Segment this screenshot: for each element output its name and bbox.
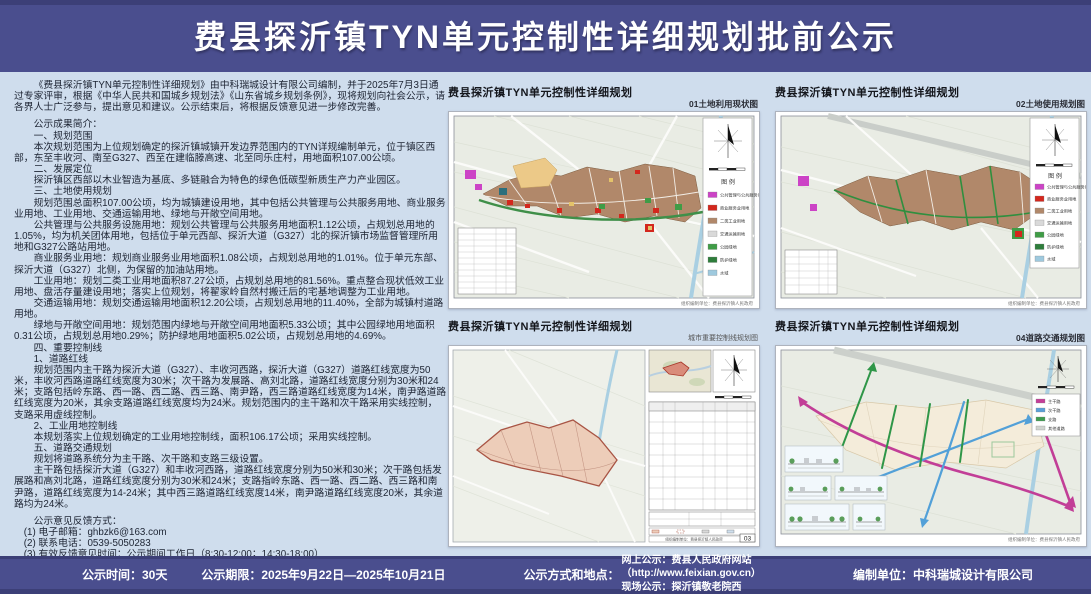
locator-map <box>649 350 711 392</box>
control-line-table <box>649 402 755 510</box>
section5-body2: 主干路包括探沂大道（G327）和丰收河西路，道路红线宽度分别为50米和30米；次… <box>14 465 447 510</box>
compass-icon <box>713 350 755 392</box>
svg-text:支路: 支路 <box>1048 416 1057 423</box>
section3-body3: 商业服务业用地：规划商业服务业用地面积1.08公顷，占规划总用地的1.01%。位… <box>14 253 447 275</box>
map-road-traffic: 主干路 次干路 支路 其他道路 <box>776 346 1086 546</box>
svg-text:交通运输用地: 交通运输用地 <box>1047 220 1073 227</box>
stats-table <box>458 228 516 294</box>
section1-body: 本次规划范围为上位规划确定的探沂镇城镇开发边界范围内的TYN详规编制单元，位于镇… <box>14 142 447 164</box>
svg-text:防护绿地: 防护绿地 <box>720 257 738 264</box>
panel-road-traffic: 费县探沂镇TYN单元控制性详细规划 04道路交通规划图 <box>775 318 1087 547</box>
svg-text:次干路: 次干路 <box>1048 407 1061 414</box>
panel-control-lines: 费县探沂镇TYN单元控制性详细规划 城市重要控制线规划图 <box>448 318 760 547</box>
panel1-map-card: 图 例 公共管理与公共服务用地 商业服务业用地 二类工业用地 交通运输用地 公园… <box>448 111 760 309</box>
svg-text:商业服务业用地: 商业服务业用地 <box>1047 196 1077 203</box>
panel1-subtitle: 01土地利用现状图 <box>689 98 758 110</box>
footer-publicity-period: 公示期限：2025年9月22日—2025年10月21日 <box>201 566 445 583</box>
map-legend-row <box>649 528 755 535</box>
section4-sub2: 2、工业用地控制线 <box>14 421 447 432</box>
legend-title: 图 例 <box>721 178 735 186</box>
feedback-heading: 公示意见反馈方式： <box>14 516 447 527</box>
stats-table <box>785 250 837 294</box>
panel2-subtitle: 02土地使用规划图 <box>1016 98 1085 110</box>
section4-heading: 四、重要控制线 <box>14 343 447 354</box>
notice-intro: 《费县探沂镇TYN单元控制性详细规划》由中科瑞城设计有限公司编制，并于2025年… <box>14 80 447 113</box>
section3-body4: 工业用地：规划二类工业用地面积87.27公顷，占规划总用地的81.56%。重点整… <box>14 276 447 298</box>
svg-text:二类工业用地: 二类工业用地 <box>1047 208 1073 215</box>
legend-sidebar: 图 例 公共管理与公共服务用地 商业服务业用地 二类工业用地 交通运输用地 公园… <box>1030 118 1086 268</box>
panel4-credit: 组织编制单位：费县探沂镇人民政府 <box>1008 536 1080 543</box>
svg-text:防护绿地: 防护绿地 <box>1047 244 1065 251</box>
section3-body2: 公共管理与公共服务设施用地：规划公共管理与公共服务用地面积1.12公顷，占规划总… <box>14 220 447 253</box>
panel-landuse-status: 费县探沂镇TYN单元控制性详细规划 01土地利用现状图 <box>448 84 760 309</box>
title-bar: 组织编制单位：费县探沂镇人民政府 03 <box>649 534 755 543</box>
map-landuse-status: 图 例 公共管理与公共服务用地 商业服务业用地 二类工业用地 交通运输用地 公园… <box>449 112 759 308</box>
map-landuse-plan: 图 例 公共管理与公共服务用地 商业服务业用地 二类工业用地 交通运输用地 公园… <box>776 112 1086 308</box>
svg-text:水域: 水域 <box>1047 256 1056 262</box>
svg-text:公共管理与公共服务用地: 公共管理与公共服务用地 <box>720 192 759 199</box>
panel1-credit: 组织编制单位：费县探沂镇人民政府 <box>681 300 753 307</box>
page-title: 费县探沂镇TYN单元控制性详细规划批前公示 <box>0 5 1091 69</box>
footer-publicity-time: 公示时间：30天 <box>82 566 167 583</box>
section3-body5: 交通运输用地：规划交通运输用地面积12.20公顷，占规划总用地的11.40%，全… <box>14 298 447 320</box>
section3-heading: 三、土地使用规划 <box>14 186 447 197</box>
panel4-subtitle: 04道路交通规划图 <box>1016 332 1085 344</box>
svg-text:其他道路: 其他道路 <box>1048 425 1066 432</box>
section4-sub1: 1、道路红线 <box>14 354 447 365</box>
footer-bar: 公示时间：30天 公示期限：2025年9月22日—2025年10月21日 公示方… <box>0 556 1091 594</box>
feedback-item-1: (1) 电子邮箱：ghbzk6@163.com <box>14 527 447 538</box>
notice-text-column: 《费县探沂镇TYN单元控制性详细规划》由中科瑞城设计有限公司编制，并于2025年… <box>14 80 447 558</box>
section3-body1: 规划范围总面积107.00公顷，均为城镇建设用地，其中包括公共管理与公共服务用地… <box>14 198 447 220</box>
footer-online-notice: 网上公示：费县人民政府网站（http://www.feixian.gov.cn） <box>621 554 853 581</box>
feedback-item-2: (2) 联系电话：0539-5050283 <box>14 538 447 549</box>
panel3-page-number: 03 <box>744 536 752 543</box>
section3-body6: 绿地与开敞空间用地：规划范围内绿地与开敞空间用地面积5.33公顷；其中公园绿地用… <box>14 320 447 342</box>
legend-sidebar: 图 例 公共管理与公共服务用地 商业服务业用地 二类工业用地 交通运输用地 公园… <box>703 118 759 296</box>
svg-text:二类工业用地: 二类工业用地 <box>720 218 746 225</box>
svg-text:公园绿地: 公园绿地 <box>720 244 738 251</box>
scale-bar <box>715 396 751 398</box>
scale-bar <box>1036 164 1072 166</box>
title-banner: 费县探沂镇TYN单元控制性详细规划批前公示 <box>0 0 1091 72</box>
svg-text:水域: 水域 <box>720 270 729 276</box>
summary-table <box>649 512 755 526</box>
panel2-map-card: 图 例 公共管理与公共服务用地 商业服务业用地 二类工业用地 交通运输用地 公园… <box>775 111 1087 309</box>
footer-method-label: 公示方式和地点： <box>523 566 619 583</box>
footer-compiling-unit: 编制单位：中科瑞城设计有限公司 <box>853 566 1033 583</box>
panel3-title: 费县探沂镇TYN单元控制性详细规划 <box>448 318 760 334</box>
map-control-lines: 组织编制单位：费县探沂镇人民政府 03 <box>449 346 759 546</box>
scale-bar <box>1038 386 1074 388</box>
panel-landuse-plan: 费县探沂镇TYN单元控制性详细规划 02土地使用规划图 <box>775 84 1087 309</box>
svg-text:公园绿地: 公园绿地 <box>1047 232 1065 239</box>
scale-bar <box>709 168 745 170</box>
svg-text:主干路: 主干路 <box>1048 398 1061 405</box>
svg-text:商业服务业用地: 商业服务业用地 <box>720 205 750 212</box>
section5-heading: 五、道路交通规划 <box>14 443 447 454</box>
section4-body2: 本规划落实上位规划确定的工业用地控制线，面积106.17公顷；采用实线控制。 <box>14 432 447 443</box>
panel3-map-card: 组织编制单位：费县探沂镇人民政府 03 <box>448 345 760 547</box>
svg-text:交通运输用地: 交通运输用地 <box>720 231 746 238</box>
section1-heading: 一、规划范围 <box>14 131 447 142</box>
section2-heading: 二、发展定位 <box>14 164 447 175</box>
section4-body1: 规划范围内主干路为探沂大道（G327）、丰收河西路，探沂大道（G327）道路红线… <box>14 365 447 421</box>
summary-heading: 公示成果简介： <box>14 119 447 130</box>
footer-onsite-notice: 现场公示：探沂镇敬老院西 <box>621 581 853 594</box>
map-panels-grid: 费县探沂镇TYN单元控制性详细规划 01土地利用现状图 <box>448 84 1087 547</box>
panel3-credit: 组织编制单位：费县探沂镇人民政府 <box>665 537 723 542</box>
legend-title: 图 例 <box>1048 172 1062 180</box>
footer-method-block: 公示方式和地点： 网上公示：费县人民政府网站（http://www.feixia… <box>523 554 853 594</box>
road-legend: 主干路 次干路 支路 其他道路 <box>1032 394 1080 436</box>
svg-text:公共管理与公共服务用地: 公共管理与公共服务用地 <box>1047 184 1086 191</box>
panel4-map-card: 主干路 次干路 支路 其他道路 <box>775 345 1087 547</box>
section2-body: 探沂镇区西部以木业智造为基底、多链融合为特色的绿色低碳型新质生产力产业园区。 <box>14 175 447 186</box>
panel3-subtitle: 城市重要控制线规划图 <box>688 333 758 343</box>
section5-body1: 规划将道路系统分为主干路、次干路和支路三级设置。 <box>14 454 447 465</box>
panel2-credit: 组织编制单位：费县探沂镇人民政府 <box>1008 300 1080 307</box>
